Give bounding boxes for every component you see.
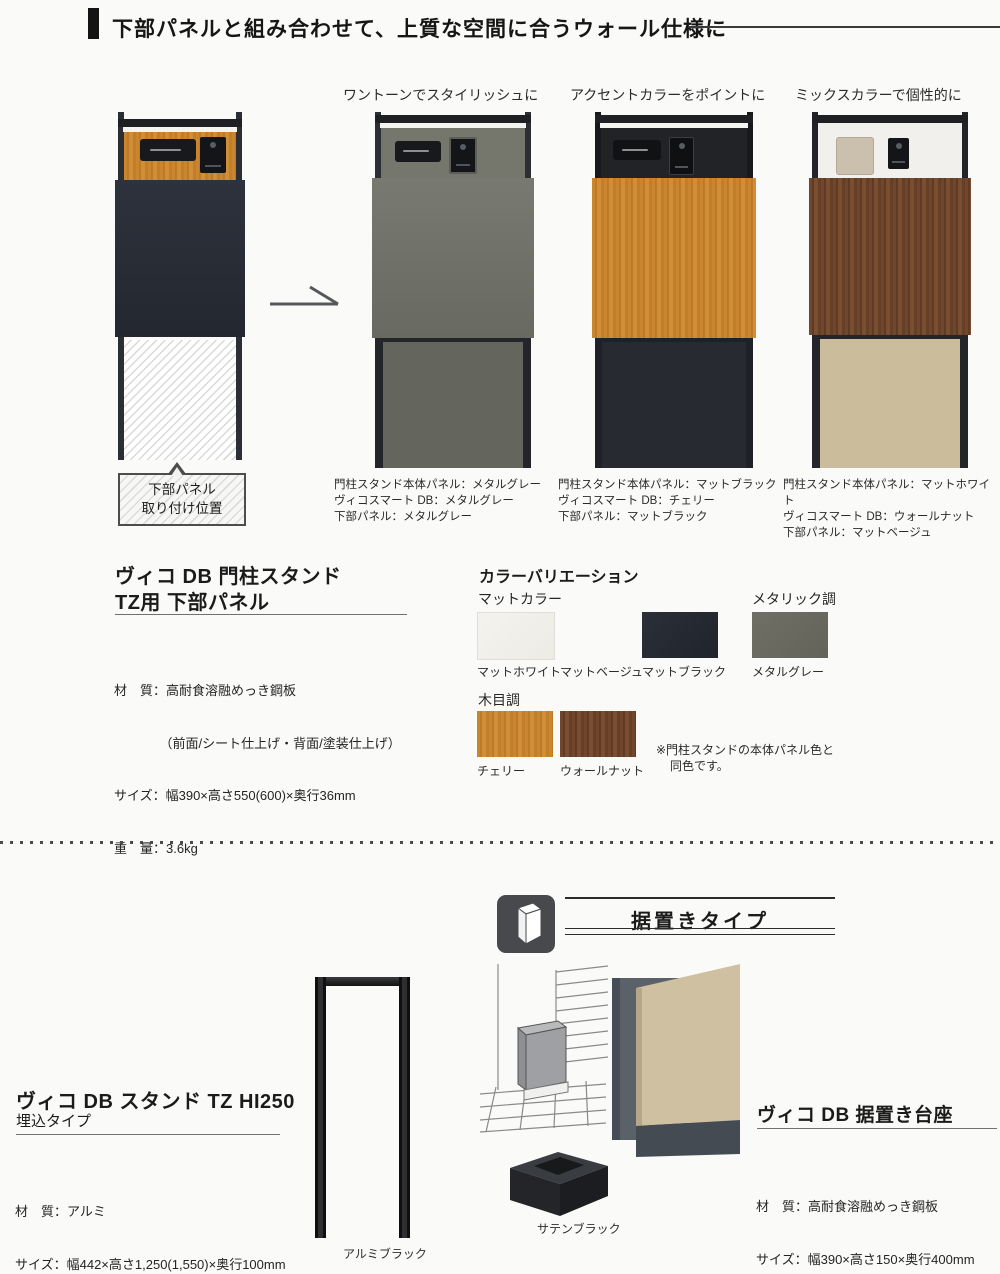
spec-line: ヴィコスマート DB：メタルグレー [334,493,541,509]
lower-panel-position-hatch [124,340,236,460]
standing-type-icon [496,894,556,954]
mail-slot-icon [395,141,441,162]
device-panel-cherry [124,132,236,180]
swatch-label-matte-white: マットホワイト [477,663,561,680]
pedestal-figure [610,958,742,1160]
callout-pointer-fill [171,467,183,476]
header-rule [688,26,1000,28]
spec-size: サイズ：幅390×高さ550(600)×奥行36mm [114,787,401,805]
stand-top-bar [812,115,968,123]
lower-panel-metal-gray [383,342,523,468]
band-underline-2 [565,934,835,935]
stand-product-specs: 材 質：アルミ サイズ：幅442×高さ1,250(1,550)×奥行100mm … [15,1168,286,1274]
header-accent-bar [88,8,99,39]
base-product-rule [757,1128,997,1129]
swatch-label-cherry: チェリー [477,762,525,779]
frame-top-bar [315,977,410,986]
lower-panel-matte-black [602,342,746,468]
stand-top-bar [375,115,531,123]
frame-leg-right [399,977,410,1238]
lower-panel-frame [812,335,968,468]
stand-body-panel [372,178,534,338]
mounting-position-callout: 下部パネル 取り付け位置 [118,473,246,526]
intercom-icon [669,137,694,175]
mail-slot-icon [613,140,661,160]
dotted-divider [0,841,1000,844]
spec-material: 材 質：高耐食溶融めっき鋼板 [114,682,401,700]
spec-line: 下部パネル：メタルグレー [334,509,541,525]
stand-product-subtitle: 埋込タイプ [16,1110,91,1131]
variant-spec-accent: 門柱スタンド本体パネル：マットブラック ヴィコスマート DB：チェリー 下部パネ… [558,477,777,525]
spec-size: サイズ：幅390×高さ150×奥行400mm [756,1251,990,1269]
frame-leg-left [315,977,326,1238]
spec-line: ヴィコスマート DB：ウォールナット [783,509,1000,525]
lower-panel-frame [595,338,753,468]
callout-line2: 取り付け位置 [142,501,223,516]
caption-accent: アクセントカラーをポイントに [570,85,765,105]
swatch-metal-gray [752,612,828,658]
panel-product-rule [115,614,407,615]
note-line1: ※門柱スタンドの本体パネル色と [656,742,834,758]
device-panel-metal-gray [381,128,525,178]
base-finish-label: サテンブラック [537,1220,621,1237]
base-product-title: ヴィコ DB 据置き台座 [757,1100,953,1127]
wood-group-label: 木目調 [478,690,520,710]
intercom-icon [449,137,477,174]
spec-line: 門柱スタンド本体パネル：メタルグレー [334,477,541,493]
product-figure-mix [812,112,968,468]
catalog-page: 下部パネルと組み合わせて、上質な空間に合うウォール仕様に ワントーンでスタイリッ… [0,0,1000,1274]
swatch-matte-beige [560,612,636,658]
product-figure-base [118,112,242,460]
band-underline-1 [565,928,835,929]
swatch-label-metal-gray: メタルグレー [752,663,824,680]
installation-sketch [478,962,610,1134]
spec-line: 門柱スタンド本体パネル：マットホワイト [783,477,1000,509]
stand-body-panel-walnut [809,178,971,335]
caption-mix: ミックスカラーで個性的に [795,85,962,105]
variant-spec-one-tone: 門柱スタンド本体パネル：メタルグレー ヴィコスマート DB：メタルグレー 下部パ… [334,477,541,525]
swatch-label-walnut: ウォールナット [560,762,644,779]
swatch-matte-black [642,612,718,658]
variant-spec-mix: 門柱スタンド本体パネル：マットホワイト ヴィコスマート DB：ウォールナット 下… [783,477,1000,541]
panel-product-title-2: TZ用 下部パネル [115,586,270,615]
standing-type-band: 据置きタイプ [565,897,835,929]
satin-black-base-figure [500,1146,616,1220]
metallic-group-label: メタリック調 [752,589,836,609]
color-variation-note: ※門柱スタンドの本体パネル色と 同色です。 [656,742,834,774]
swatch-label-matte-black: マットブラック [642,663,726,680]
swatch-walnut [560,711,636,757]
caption-one-tone: ワントーンでスタイリッシュに [343,85,538,105]
lower-panel-matte-beige [820,339,960,468]
page-title: 下部パネルと組み合わせて、上質な空間に合うウォール仕様に [112,13,727,43]
spec-material: 材 質：高耐食溶融めっき鋼板 [756,1198,990,1216]
matte-group-label: マットカラー [478,589,562,609]
lower-panel-frame [375,338,531,468]
product-figure-accent [595,112,753,468]
base-product-specs: 材 質：高耐食溶融めっき鋼板 サイズ：幅390×高さ150×奥行400mm 重 … [756,1163,990,1274]
spec-size: サイズ：幅442×高さ1,250(1,550)×奥行100mm [15,1256,286,1274]
mail-slot-icon [140,139,196,161]
color-variation-title: カラーバリエーション [479,563,639,587]
note-line2: 同色です。 [656,758,834,774]
spec-line: 下部パネル：マットベージュ [783,525,1000,541]
device-panel-matte-white [818,123,962,178]
spec-line: 門柱スタンド本体パネル：マットブラック [558,477,777,493]
stand-top-bar [595,115,753,123]
frame-finish-label: アルミブラック [343,1245,427,1262]
product-figure-one-tone [375,112,531,468]
panel-product-specs: 材 質：高耐食溶融めっき鋼板 （前面/シート仕上げ・背面/塗装仕上げ） サイズ：… [114,647,401,892]
swatch-label-matte-beige: マットベージュ [560,663,643,680]
spec-line: ヴィコスマート DB：チェリー [558,493,777,509]
spec-line: 下部パネル：マットブラック [558,509,777,525]
panel-product-title-1: ヴィコ DB 門柱スタンド [115,560,342,589]
arrow-icon [268,280,342,310]
stand-top-bar [118,119,242,127]
stand-product-rule [16,1134,280,1135]
swatch-cherry [477,711,553,757]
spec-material: 材 質：アルミ [15,1203,286,1221]
stand-body-panel [115,180,245,337]
mailbox-door-icon [836,137,874,175]
stand-body-panel-cherry [592,178,756,338]
spec-material-note: （前面/シート仕上げ・背面/塗装仕上げ） [114,735,401,753]
intercom-icon [200,137,226,173]
device-panel-matte-black [601,128,747,178]
intercom-icon [888,138,909,169]
callout-line1: 下部パネル [148,482,216,497]
swatch-matte-white [477,612,555,660]
